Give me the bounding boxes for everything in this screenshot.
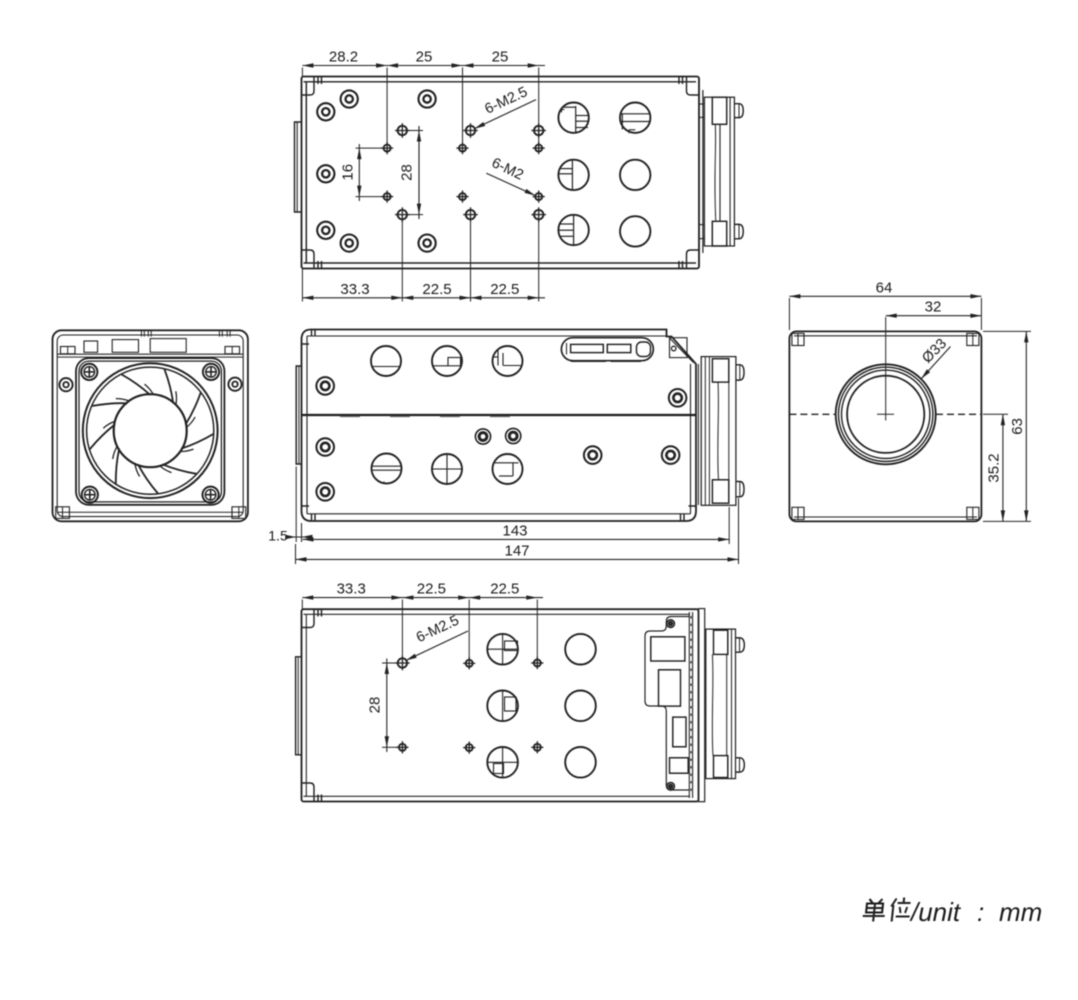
svg-text:1.5: 1.5	[268, 528, 288, 544]
svg-text:22.5: 22.5	[490, 581, 519, 598]
svg-text:33.3: 33.3	[340, 281, 369, 298]
svg-text:22.5: 22.5	[417, 581, 446, 598]
svg-text:16: 16	[340, 164, 357, 181]
svg-text:35.2: 35.2	[986, 453, 1003, 482]
svg-text:147: 147	[504, 543, 529, 560]
svg-text:25: 25	[492, 49, 509, 66]
svg-text:6-M2: 6-M2	[489, 155, 526, 183]
svg-text::: :	[977, 897, 984, 927]
svg-text:28: 28	[366, 697, 383, 714]
svg-text:22.5: 22.5	[422, 281, 451, 298]
svg-text:143: 143	[502, 523, 527, 540]
svg-text:28: 28	[399, 164, 416, 181]
svg-text:Ø33: Ø33	[919, 336, 950, 367]
svg-text:25: 25	[416, 49, 433, 66]
svg-text:6-M2.5: 6-M2.5	[482, 84, 530, 118]
svg-text:/unit: /unit	[909, 897, 962, 927]
svg-text:22.5: 22.5	[490, 281, 519, 298]
svg-text:mm: mm	[999, 897, 1042, 927]
svg-text:63: 63	[1009, 418, 1026, 435]
svg-text:64: 64	[876, 279, 893, 296]
svg-text:28.2: 28.2	[329, 49, 358, 66]
svg-text:6-M2.5: 6-M2.5	[414, 613, 462, 647]
svg-text:33.3: 33.3	[337, 581, 366, 598]
svg-text:32: 32	[925, 299, 942, 316]
